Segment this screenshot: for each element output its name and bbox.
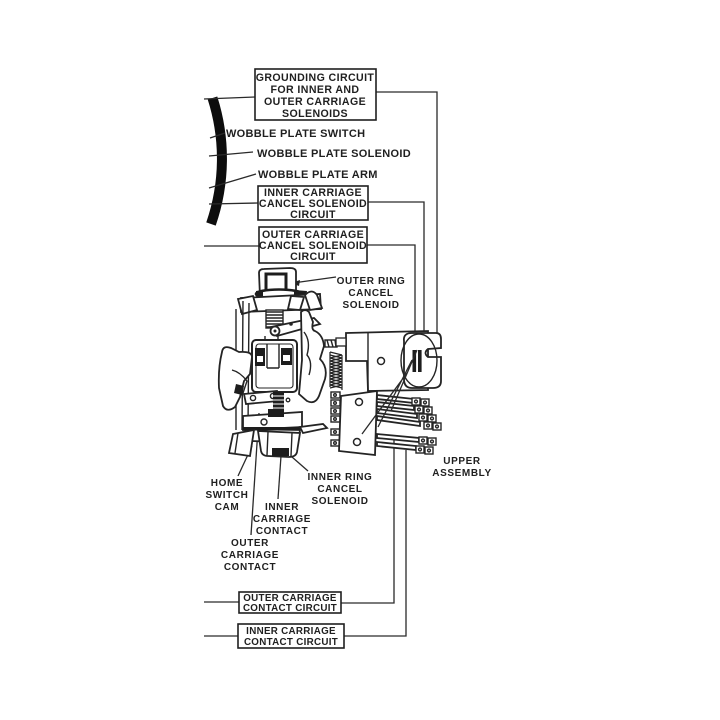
svg-text:UPPER: UPPER [443, 456, 481, 467]
svg-text:OUTER: OUTER [231, 538, 269, 549]
svg-text:INNER RING: INNER RING [308, 472, 373, 483]
svg-text:CARRIAGE: CARRIAGE [253, 514, 311, 525]
svg-text:WOBBLE PLATE SWITCH: WOBBLE PLATE SWITCH [226, 128, 365, 140]
svg-text:CARRIAGE: CARRIAGE [221, 550, 279, 561]
svg-text:GROUNDING CIRCUIT: GROUNDING CIRCUIT [256, 72, 375, 84]
svg-text:SOLENOID: SOLENOID [342, 300, 399, 311]
svg-text:HOME: HOME [211, 478, 243, 489]
svg-text:CIRCUIT: CIRCUIT [290, 209, 336, 221]
svg-text:OUTER RING: OUTER RING [337, 276, 406, 287]
svg-text:SOLENOID: SOLENOID [311, 496, 368, 507]
svg-text:CONTACT: CONTACT [256, 526, 308, 537]
svg-text:CONTACT CIRCUIT: CONTACT CIRCUIT [244, 637, 338, 648]
svg-text:WOBBLE PLATE ARM: WOBBLE PLATE ARM [258, 169, 378, 181]
svg-text:ASSEMBLY: ASSEMBLY [432, 468, 491, 479]
svg-text:CAM: CAM [215, 502, 240, 513]
svg-text:SWITCH: SWITCH [205, 490, 248, 501]
svg-text:CONTACT CIRCUIT: CONTACT CIRCUIT [243, 603, 337, 614]
svg-text:WOBBLE PLATE SOLENOID: WOBBLE PLATE SOLENOID [257, 148, 411, 160]
svg-text:INNER CARRIAGE: INNER CARRIAGE [246, 626, 336, 637]
svg-text:CONTACT: CONTACT [224, 562, 276, 573]
svg-text:CIRCUIT: CIRCUIT [290, 251, 336, 263]
svg-text:FOR INNER AND: FOR INNER AND [271, 84, 360, 96]
svg-text:CANCEL: CANCEL [348, 288, 393, 299]
svg-text:CANCEL: CANCEL [317, 484, 362, 495]
svg-text:OUTER CARRIAGE: OUTER CARRIAGE [264, 96, 366, 108]
svg-text:SOLENOIDS: SOLENOIDS [282, 108, 348, 120]
svg-text:INNER: INNER [265, 502, 299, 513]
